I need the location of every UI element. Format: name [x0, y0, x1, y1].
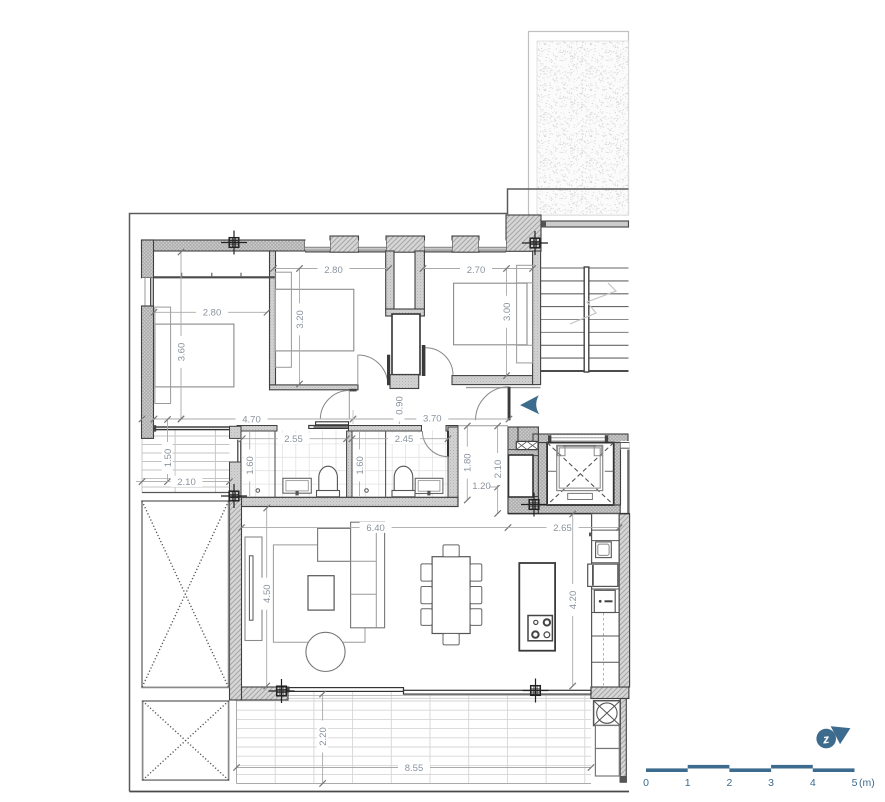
svg-text:1.80: 1.80 — [463, 453, 474, 472]
svg-text:3: 3 — [768, 777, 774, 789]
svg-text:3.70: 3.70 — [423, 414, 442, 425]
svg-text:(m): (m) — [859, 777, 875, 789]
svg-text:3.00: 3.00 — [502, 303, 513, 322]
svg-text:5: 5 — [852, 777, 858, 789]
svg-text:2.55: 2.55 — [284, 434, 303, 445]
svg-text:0.90: 0.90 — [395, 396, 406, 415]
svg-text:2.20: 2.20 — [318, 727, 329, 746]
svg-text:2.80: 2.80 — [203, 308, 222, 319]
svg-text:3.20: 3.20 — [295, 310, 306, 329]
svg-text:4.70: 4.70 — [242, 415, 261, 426]
svg-text:2.45: 2.45 — [395, 434, 414, 445]
svg-text:8.55: 8.55 — [405, 763, 424, 774]
svg-text:2.70: 2.70 — [467, 265, 486, 276]
svg-text:6.40: 6.40 — [366, 523, 385, 534]
svg-text:1.20: 1.20 — [472, 481, 491, 492]
svg-text:4.50: 4.50 — [262, 584, 273, 603]
svg-text:2.80: 2.80 — [324, 265, 343, 276]
svg-text:2.10: 2.10 — [493, 460, 504, 479]
svg-text:1: 1 — [685, 777, 691, 789]
svg-text:2: 2 — [726, 777, 732, 789]
svg-text:2.10: 2.10 — [177, 477, 196, 488]
svg-text:4: 4 — [810, 777, 816, 789]
svg-text:4.20: 4.20 — [568, 591, 579, 610]
svg-text:1.50: 1.50 — [163, 449, 174, 468]
svg-text:3.60: 3.60 — [176, 343, 187, 362]
svg-text:0: 0 — [643, 777, 649, 789]
svg-text:2.65: 2.65 — [553, 523, 572, 534]
svg-text:1.60: 1.60 — [245, 456, 256, 475]
svg-text:1.60: 1.60 — [355, 456, 366, 475]
